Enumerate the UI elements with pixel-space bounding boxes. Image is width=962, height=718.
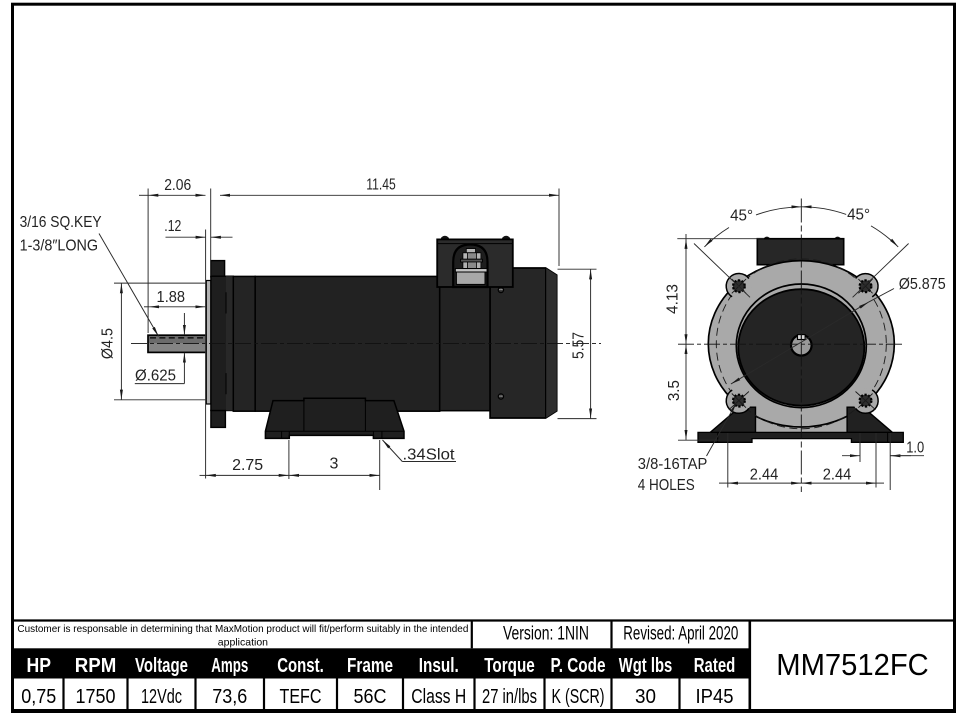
svg-text:56C: 56C [354, 685, 387, 708]
svg-text:73,6: 73,6 [212, 685, 247, 708]
svg-text:Amps: Amps [211, 655, 248, 677]
svg-text:4.13: 4.13 [664, 284, 681, 314]
svg-text:45°: 45° [730, 208, 753, 225]
svg-text:Customer is responsable in det: Customer is responsable in determining t… [17, 623, 468, 635]
svg-text:Rated: Rated [694, 655, 736, 677]
svg-text:Ø4.5: Ø4.5 [100, 328, 117, 359]
svg-text:Frame: Frame [347, 655, 393, 677]
svg-text:30: 30 [635, 685, 656, 708]
svg-text:45°: 45° [847, 207, 870, 224]
svg-text:1-3/8″LONG: 1-3/8″LONG [20, 238, 99, 255]
svg-text:.34Slot: .34Slot [403, 446, 456, 463]
svg-text:12Vdc: 12Vdc [141, 685, 182, 708]
svg-text:3.5: 3.5 [666, 380, 683, 401]
svg-text:2.44: 2.44 [750, 467, 779, 484]
svg-text:Voltage: Voltage [135, 655, 188, 677]
svg-text:27 in/lbs: 27 in/lbs [482, 685, 537, 708]
svg-text:P. Code: P. Code [551, 655, 606, 677]
svg-text:K (SCR): K (SCR) [552, 685, 605, 708]
svg-text:RPM: RPM [75, 655, 117, 677]
svg-text:0,75: 0,75 [21, 685, 56, 708]
svg-text:1.0: 1.0 [906, 440, 924, 457]
svg-text:5.57: 5.57 [571, 332, 588, 359]
svg-text:Const.: Const. [277, 655, 324, 677]
svg-text:3/8-16TAP: 3/8-16TAP [638, 456, 708, 473]
svg-text:11.45: 11.45 [366, 177, 396, 194]
svg-text:2.44: 2.44 [823, 467, 852, 484]
svg-text:Ø.625: Ø.625 [135, 368, 176, 385]
svg-text:Version: 1NIN: Version: 1NIN [503, 623, 589, 645]
svg-text:Class H: Class H [411, 685, 466, 708]
svg-text:Ø5.875: Ø5.875 [899, 276, 946, 293]
svg-text:1.88: 1.88 [157, 289, 186, 306]
svg-text:3/16 SQ.KEY: 3/16 SQ.KEY [20, 214, 102, 231]
svg-text:application: application [218, 637, 268, 649]
svg-text:TEFC: TEFC [280, 685, 322, 708]
svg-text:HP: HP [27, 655, 52, 677]
svg-text:.12: .12 [164, 218, 181, 235]
svg-text:2.06: 2.06 [164, 177, 191, 194]
svg-text:MM7512FC: MM7512FC [776, 647, 929, 682]
svg-text:3: 3 [330, 456, 339, 473]
svg-text:1750: 1750 [76, 685, 116, 708]
svg-text:2.75: 2.75 [232, 457, 263, 474]
svg-text:IP45: IP45 [696, 685, 734, 708]
svg-text:Insul.: Insul. [419, 655, 459, 677]
svg-text:4 HOLES: 4 HOLES [638, 477, 695, 494]
svg-text:Revised: April 2020: Revised: April 2020 [623, 623, 738, 645]
svg-text:Torque: Torque [484, 655, 535, 677]
svg-text:Wgt lbs: Wgt lbs [619, 655, 673, 677]
